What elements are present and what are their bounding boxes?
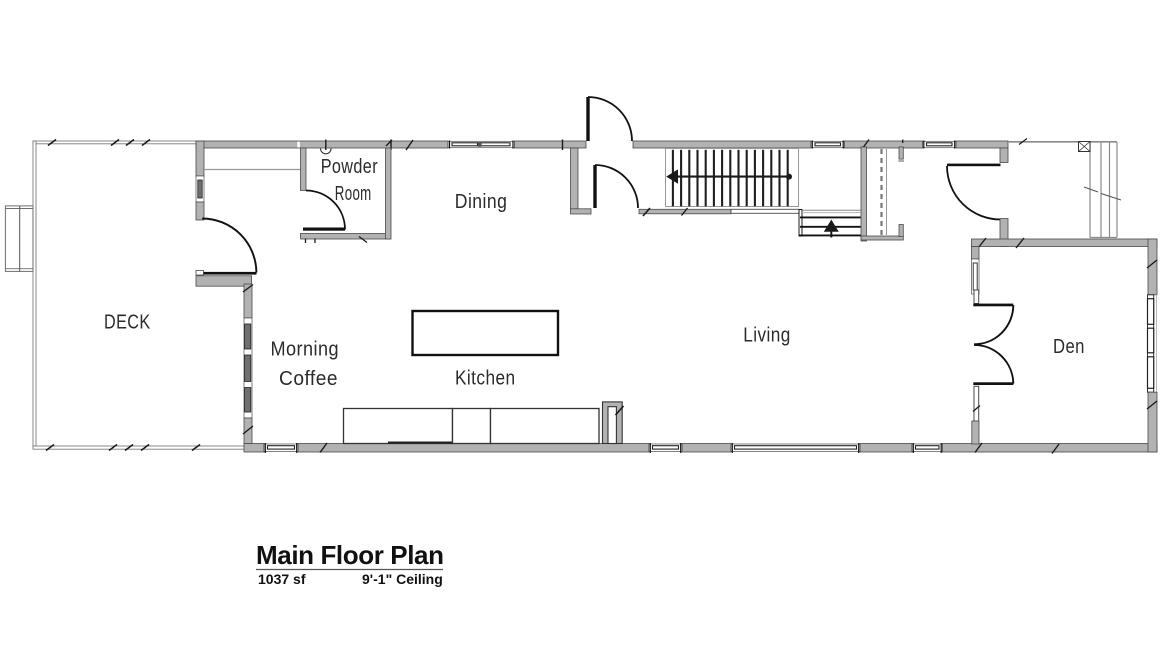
svg-text:Den: Den	[1053, 336, 1085, 358]
svg-text:DECK: DECK	[104, 312, 151, 334]
svg-text:Main Floor Plan: Main Floor Plan	[256, 540, 444, 570]
svg-text:1037 sf: 1037 sf	[258, 571, 306, 587]
svg-text:Kitchen: Kitchen	[455, 368, 516, 390]
svg-text:Living: Living	[743, 324, 791, 346]
svg-text:Coffee: Coffee	[279, 368, 338, 390]
svg-text:Dining: Dining	[455, 191, 508, 213]
svg-text:Powder: Powder	[321, 156, 378, 178]
svg-text:Morning: Morning	[271, 339, 340, 361]
svg-text:9'-1" Ceiling: 9'-1" Ceiling	[362, 571, 443, 587]
svg-text:Room: Room	[335, 183, 372, 205]
